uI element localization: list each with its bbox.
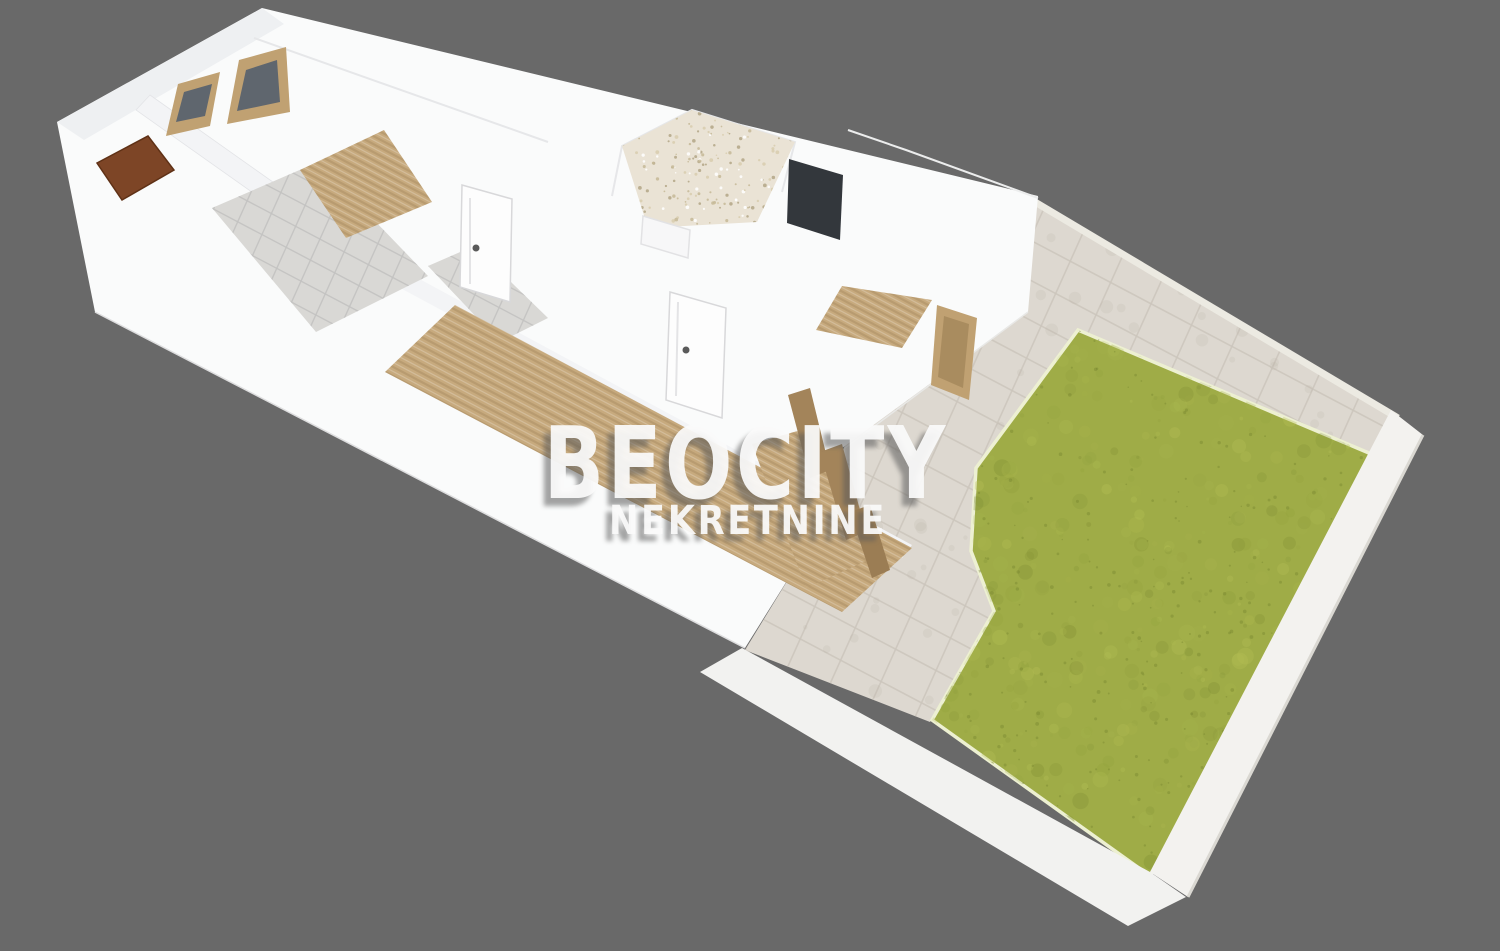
interior-door-2-handle bbox=[683, 347, 690, 354]
floorplan-3d-scene: BEOCITY BEOCITY NEKRETNINE NEKRETNINE bbox=[0, 0, 1500, 951]
interior-door-1 bbox=[460, 185, 512, 302]
interior-door-1-handle bbox=[473, 245, 480, 252]
interior-door-2 bbox=[666, 292, 726, 418]
watermark-subtitle: NEKRETNINE bbox=[609, 498, 887, 544]
floorplan-render-canvas: BEOCITY BEOCITY NEKRETNINE NEKRETNINE bbox=[0, 0, 1500, 951]
watermark: BEOCITY BEOCITY NEKRETNINE NEKRETNINE bbox=[537, 405, 949, 551]
